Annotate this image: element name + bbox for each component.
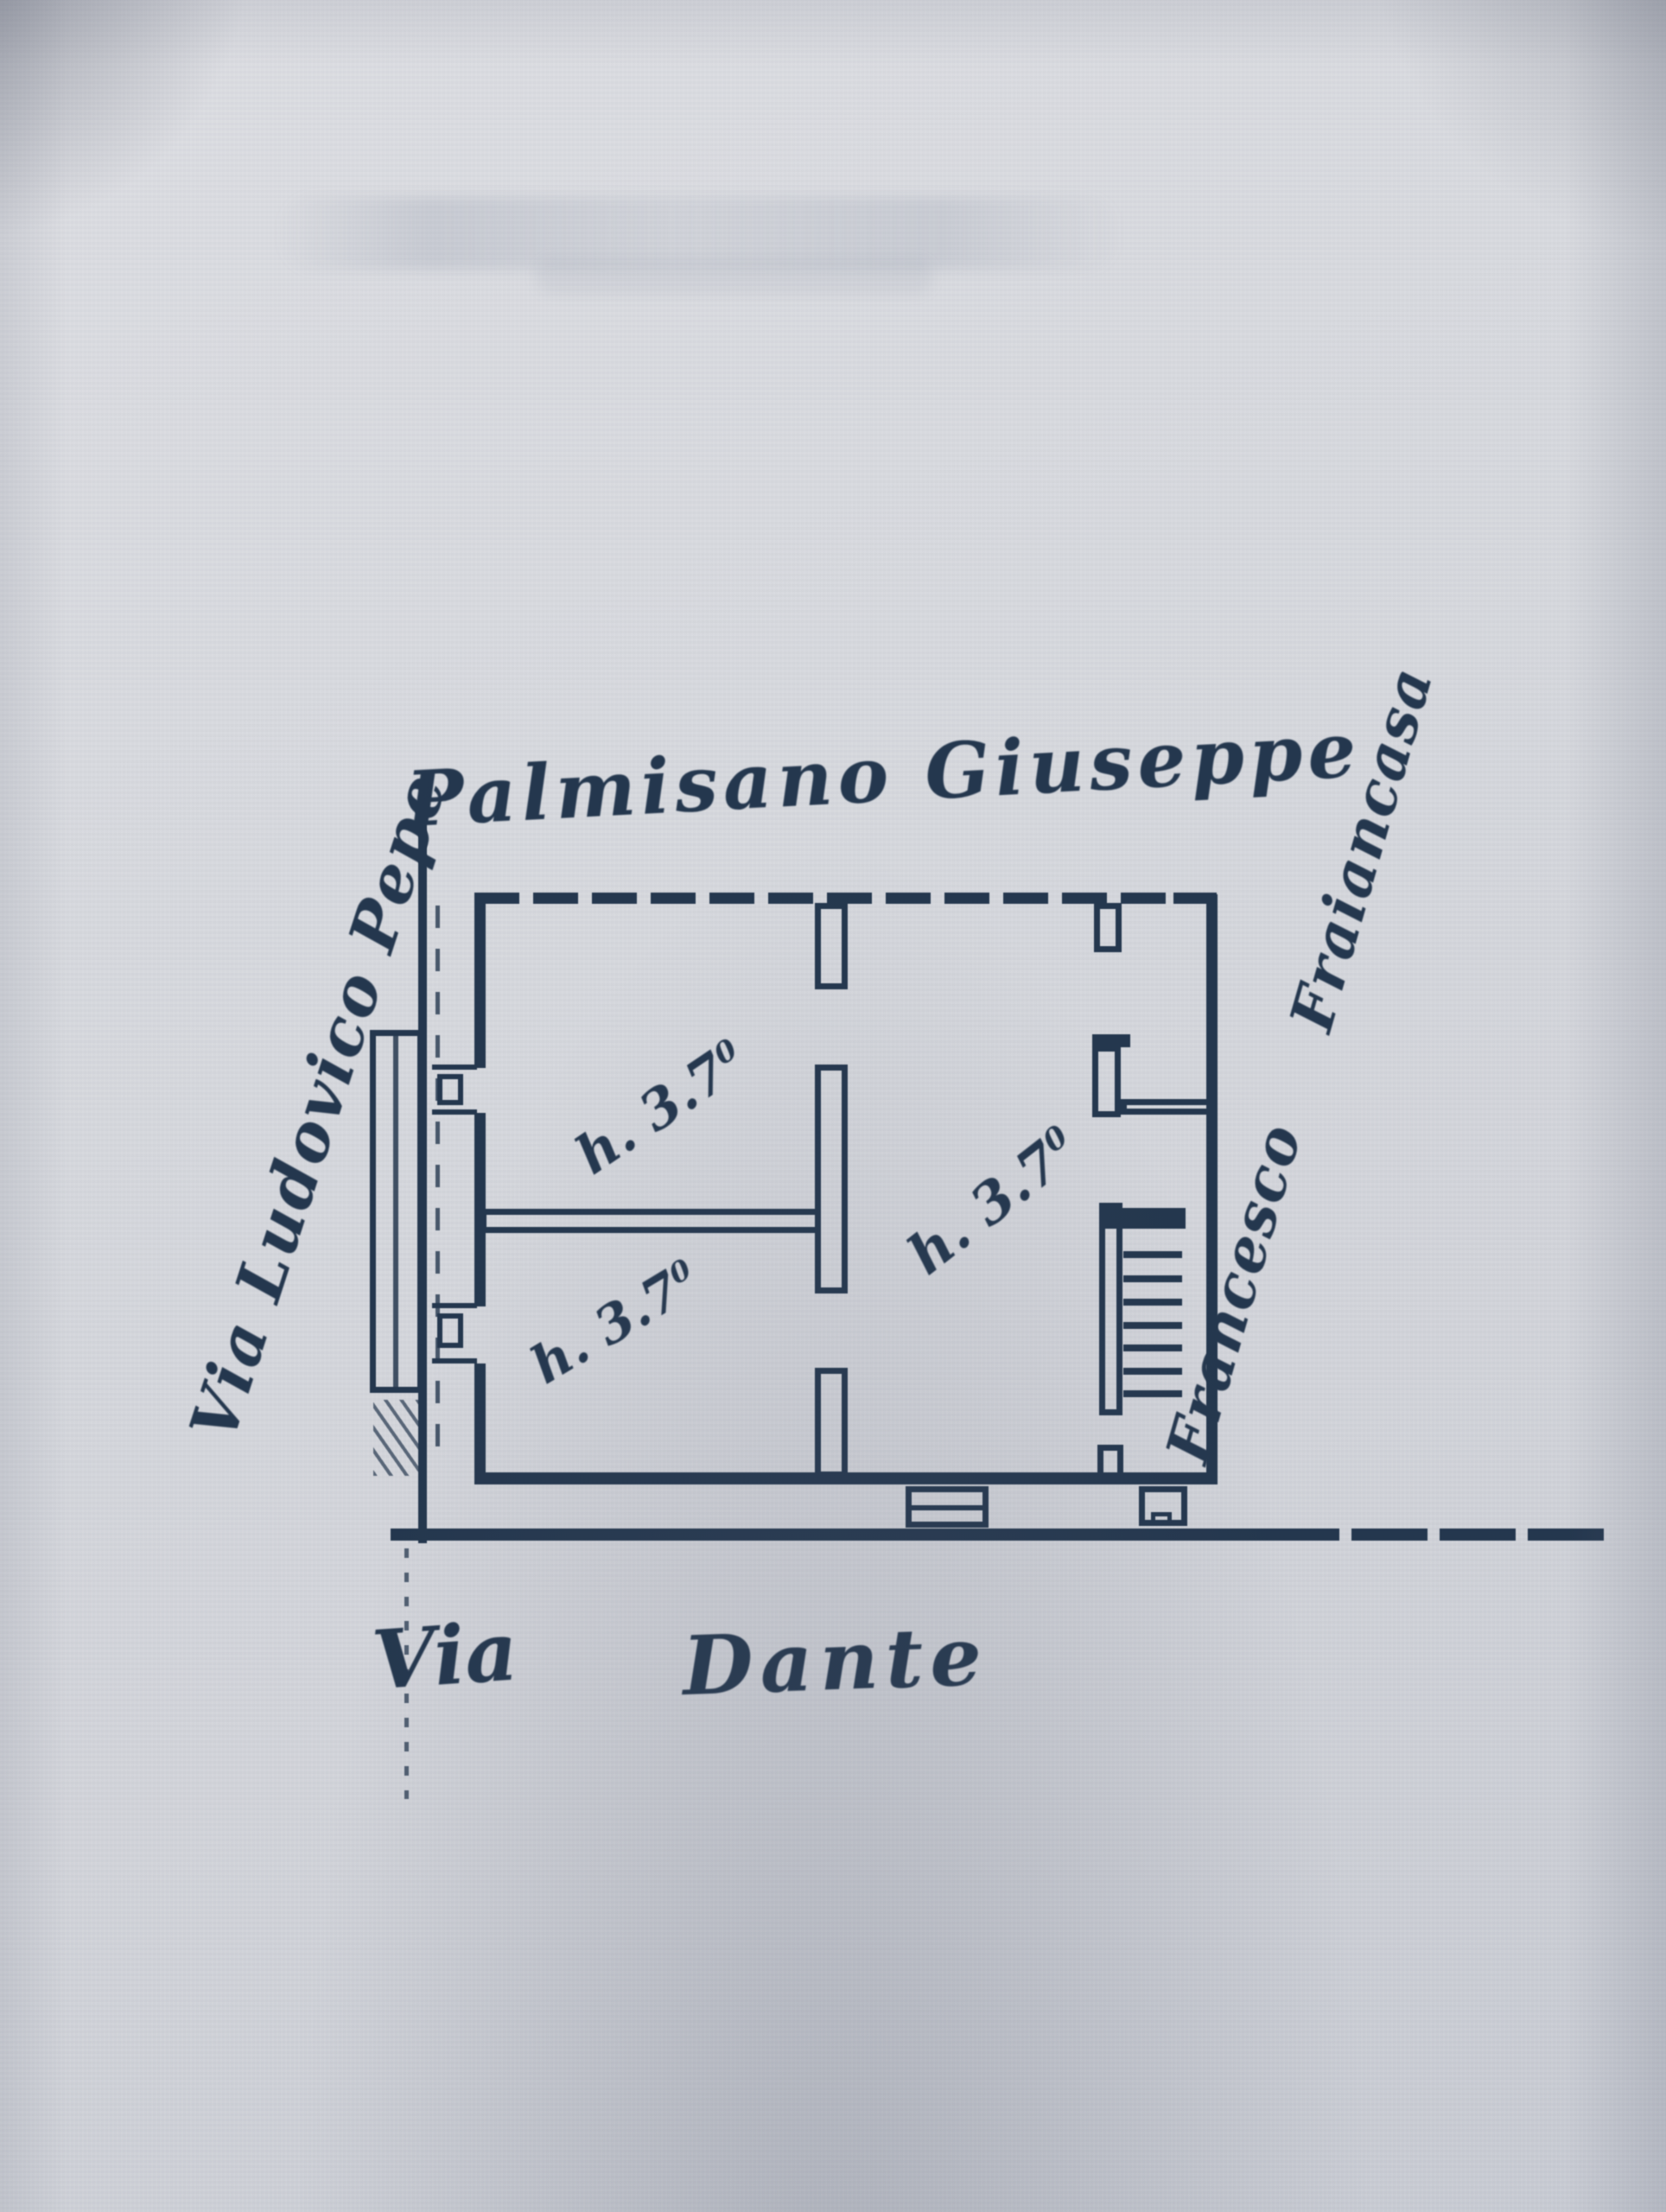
street-line-via-dante-dashed <box>1263 1529 1611 1541</box>
entrance-step-line <box>909 1505 985 1510</box>
street-inner-dashed-line <box>436 906 440 1459</box>
stair-tread <box>1123 1275 1182 1282</box>
notch-wall-vertical <box>1092 1046 1121 1117</box>
stair-tread <box>1123 1322 1182 1329</box>
stair-tread <box>1123 1251 1182 1258</box>
street-line-via-dante <box>391 1529 1263 1541</box>
stair-tread <box>1123 1368 1182 1375</box>
street-label-via: Via <box>343 1605 548 1708</box>
staircase-bottom-stub <box>1097 1445 1123 1484</box>
window-lower-block <box>437 1313 463 1348</box>
scanned-paper-page: Palmisano Giuseppe Via Ludovico Pepe Fra… <box>0 0 1666 2212</box>
street-label-dante: Dante <box>681 1612 986 1713</box>
porch-strip-inner-line <box>393 1035 398 1388</box>
window-lower-sill-top <box>432 1303 477 1308</box>
interior-vertical-wall-middle <box>815 1065 848 1294</box>
building-left-wall-lower <box>474 1363 486 1484</box>
window-lower-sill-bottom <box>432 1358 477 1363</box>
interior-vertical-wall-lower <box>815 1368 848 1478</box>
stair-tread <box>1123 1299 1182 1306</box>
stair-tread <box>1123 1344 1182 1351</box>
window-upper-sill-top <box>432 1065 477 1070</box>
notch-shelf-wall <box>1121 1099 1218 1115</box>
porch-hatch-marks <box>373 1400 425 1476</box>
interior-horizontal-wall <box>480 1209 821 1233</box>
corner-step-mark <box>1151 1512 1172 1526</box>
top-wall-stub <box>1094 903 1122 952</box>
staircase-rail <box>1099 1203 1122 1415</box>
floor-plan-drawing <box>0 0 1666 2212</box>
building-left-wall-upper <box>474 899 486 1068</box>
window-upper-sill-bottom <box>432 1109 477 1115</box>
window-upper-block <box>437 1074 463 1105</box>
interior-vertical-wall-upper <box>815 903 848 989</box>
staircase-top-tread <box>1103 1208 1186 1229</box>
